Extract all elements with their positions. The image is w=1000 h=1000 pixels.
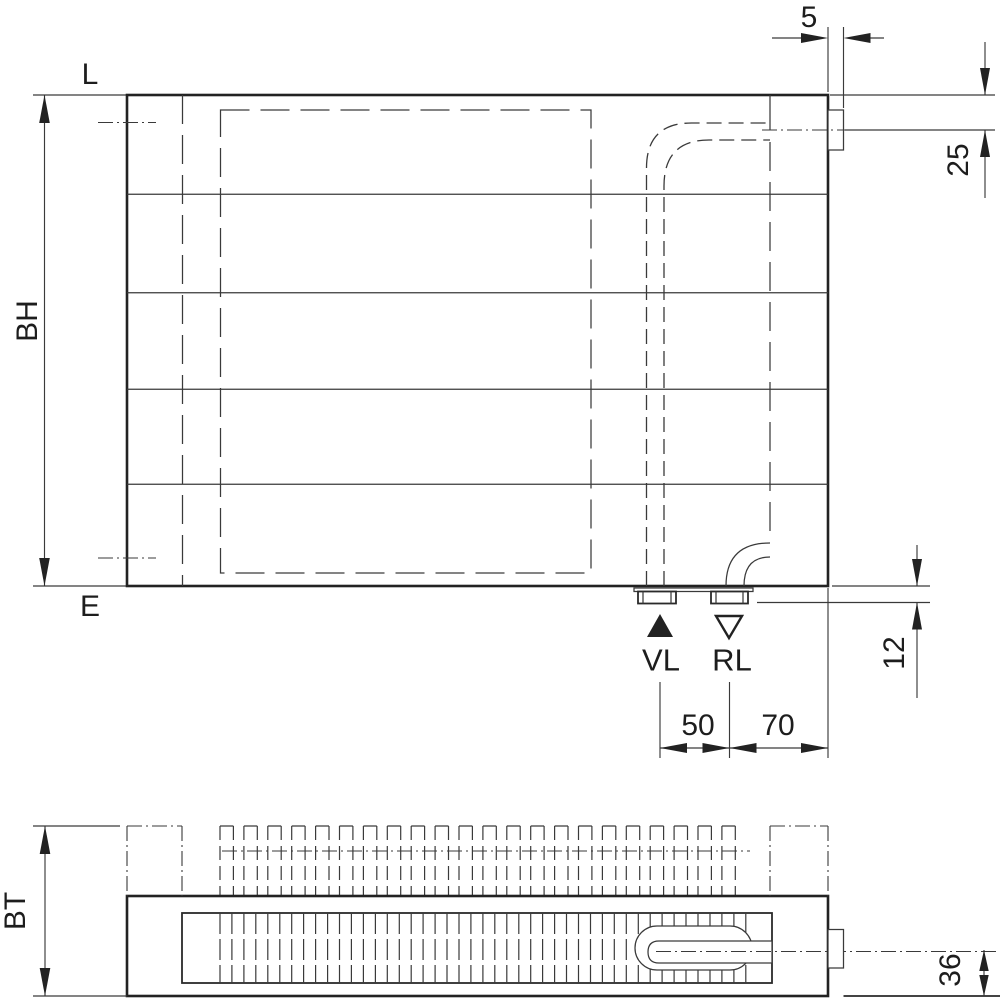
dim5-value: 5 bbox=[801, 3, 818, 33]
arrow-down-icon bbox=[980, 68, 990, 95]
front-view bbox=[33, 95, 857, 604]
arrow-right-icon bbox=[703, 743, 730, 753]
return-label: RL bbox=[712, 645, 752, 676]
arrow-up-icon bbox=[39, 95, 50, 123]
return-direction-icon bbox=[716, 616, 742, 638]
arrow-left-icon bbox=[844, 33, 871, 43]
side-stub bbox=[828, 930, 844, 969]
left-extension-lines bbox=[33, 95, 127, 586]
supply-label: VL bbox=[642, 645, 680, 676]
radiator-body-outline bbox=[127, 95, 828, 586]
dim70-value: 70 bbox=[761, 711, 794, 741]
arrow-up-icon bbox=[40, 826, 51, 854]
dim25-value: 25 bbox=[944, 143, 974, 176]
arrow-right-icon bbox=[801, 33, 828, 43]
arrow-up-icon bbox=[980, 130, 990, 157]
dim12-value: 12 bbox=[880, 636, 910, 669]
supply-stub bbox=[638, 592, 676, 604]
bottom-edge-label: E bbox=[80, 592, 100, 622]
drawing-linework bbox=[0, 0, 1000, 1000]
arrow-down-icon bbox=[40, 968, 51, 996]
length-label: L bbox=[82, 60, 99, 90]
build-depth-label: BT bbox=[1, 892, 31, 930]
build-height-label: BH bbox=[13, 300, 43, 342]
dim50-value: 50 bbox=[681, 711, 714, 741]
fin-side-edges bbox=[220, 826, 735, 896]
arrow-up-icon bbox=[979, 950, 988, 971]
top-view bbox=[127, 826, 997, 996]
arrow-down-icon bbox=[39, 558, 50, 586]
dim36-value: 36 bbox=[936, 953, 966, 986]
arrow-left-icon bbox=[730, 743, 757, 753]
arrow-up-icon bbox=[912, 603, 922, 630]
radiator-technical-drawing: L BH E 5 25 VL RL 50 70 12 BT 36 bbox=[0, 0, 1000, 1000]
supply-direction-icon bbox=[647, 614, 673, 637]
arrow-down-icon bbox=[912, 559, 922, 586]
arrow-left-icon bbox=[660, 743, 687, 753]
arrow-down-icon bbox=[979, 975, 988, 996]
arrow-right-icon bbox=[801, 743, 828, 753]
